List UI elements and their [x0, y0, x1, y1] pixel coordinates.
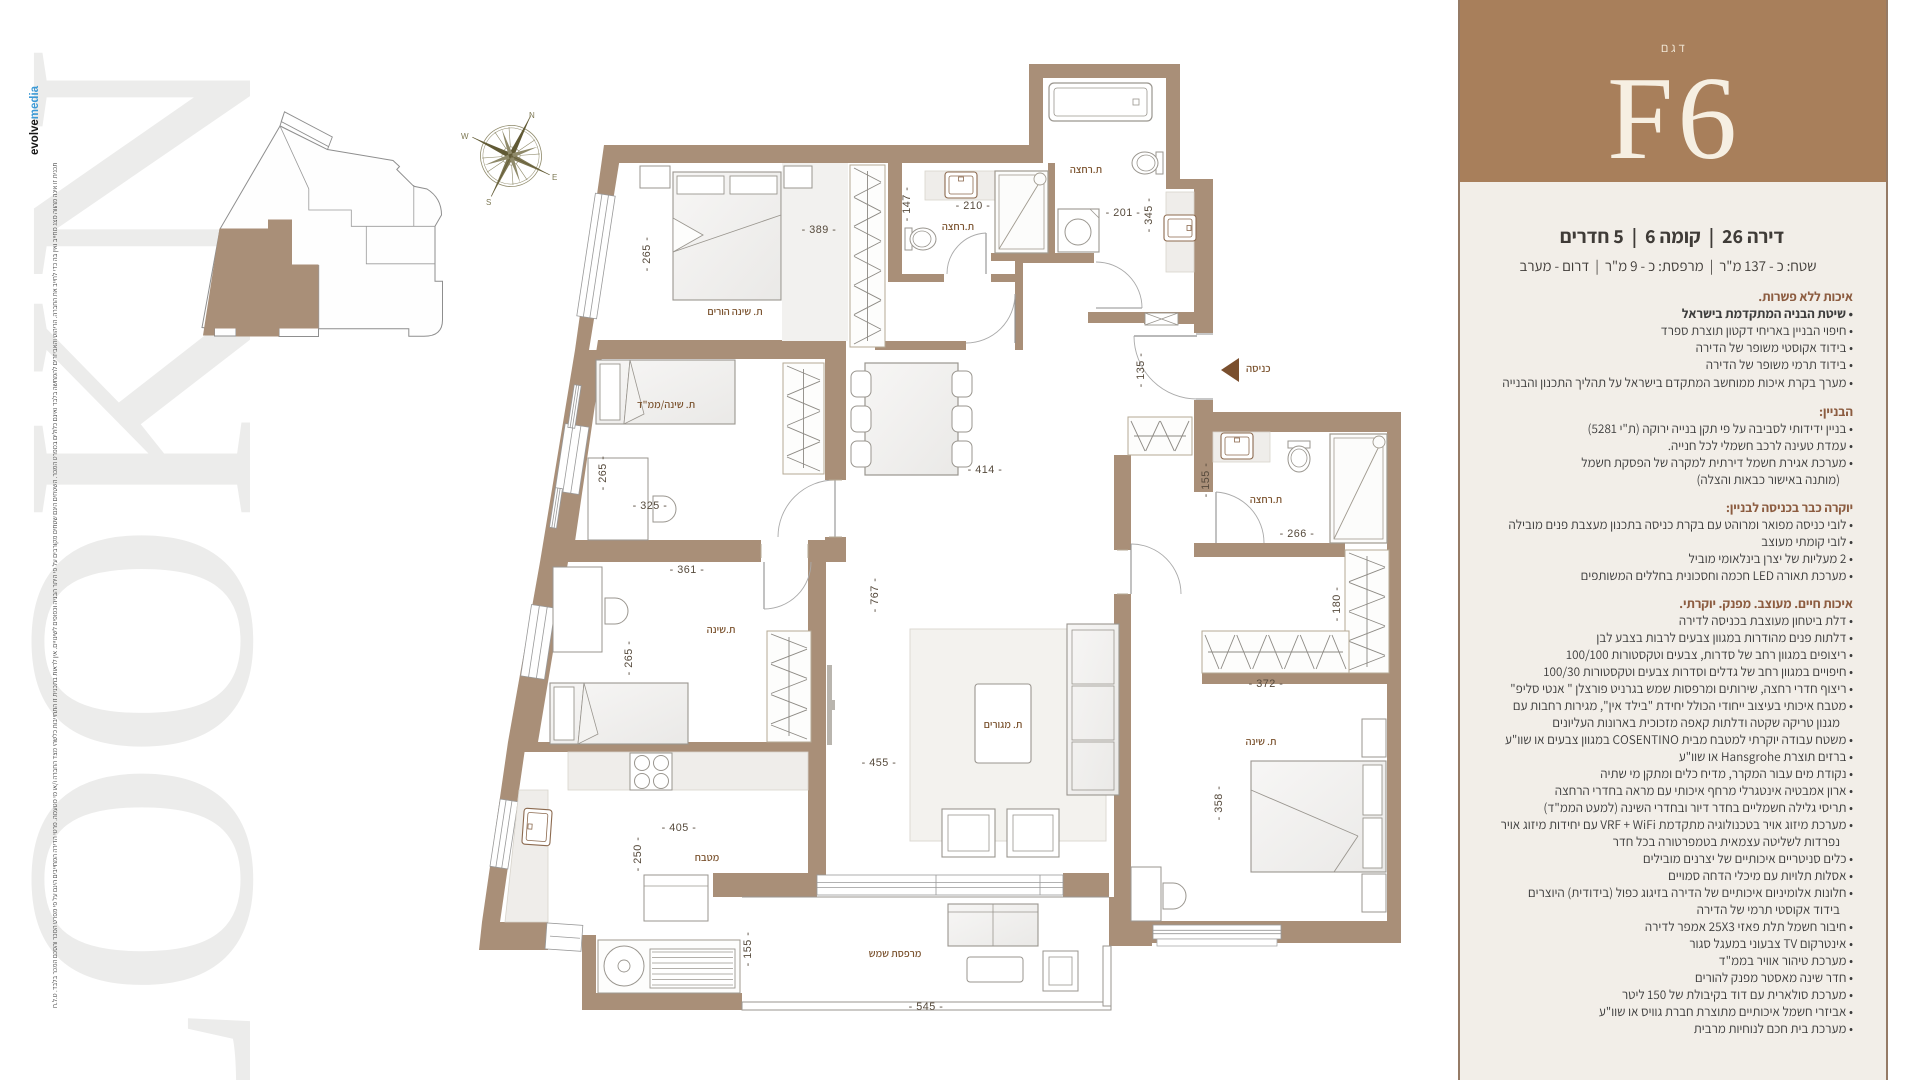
svg-text:- 389 -: - 389 - [802, 224, 837, 236]
svg-text:- 372 -: - 372 - [1249, 678, 1284, 690]
svg-text:W: W [461, 132, 469, 141]
svg-text:- 265 -: - 265 - [623, 641, 635, 676]
svg-text:- 266 -: - 266 - [1280, 528, 1315, 540]
svg-text:- 414 -: - 414 - [968, 464, 1003, 476]
svg-text:- 405 -: - 405 - [662, 822, 697, 834]
svg-text:- 265 -: - 265 - [597, 456, 609, 491]
svg-text:S: S [486, 198, 491, 207]
svg-text:- 361 -: - 361 - [670, 564, 705, 576]
svg-text:- 345 -: - 345 - [1143, 198, 1155, 233]
svg-text:- 545 -: - 545 - [909, 1001, 944, 1013]
svg-text:- 455 -: - 455 - [862, 757, 897, 769]
svg-text:- 767 -: - 767 - [869, 578, 881, 613]
svg-text:E: E [552, 173, 557, 182]
svg-text:- 250 -: - 250 - [632, 837, 644, 872]
svg-text:- 201 -: - 201 - [1106, 207, 1141, 219]
svg-text:F6: F6 [1607, 52, 1741, 184]
svg-text:- 265 -: - 265 - [641, 237, 653, 272]
svg-text:- 147 -: - 147 - [901, 187, 913, 222]
svg-text:evolvemedia: evolvemedia [29, 85, 41, 155]
svg-text:- 180 -: - 180 - [1331, 587, 1343, 622]
svg-text:- 358 -: - 358 - [1213, 786, 1225, 821]
svg-text:- 155 -: - 155 - [1200, 463, 1212, 498]
svg-text:- 325 -: - 325 - [633, 500, 668, 512]
svg-text:- 155 -: - 155 - [742, 932, 754, 967]
svg-text:- 210 -: - 210 - [956, 200, 991, 212]
svg-text:N: N [529, 111, 535, 120]
svg-text:- 135 -: - 135 - [1135, 353, 1147, 388]
